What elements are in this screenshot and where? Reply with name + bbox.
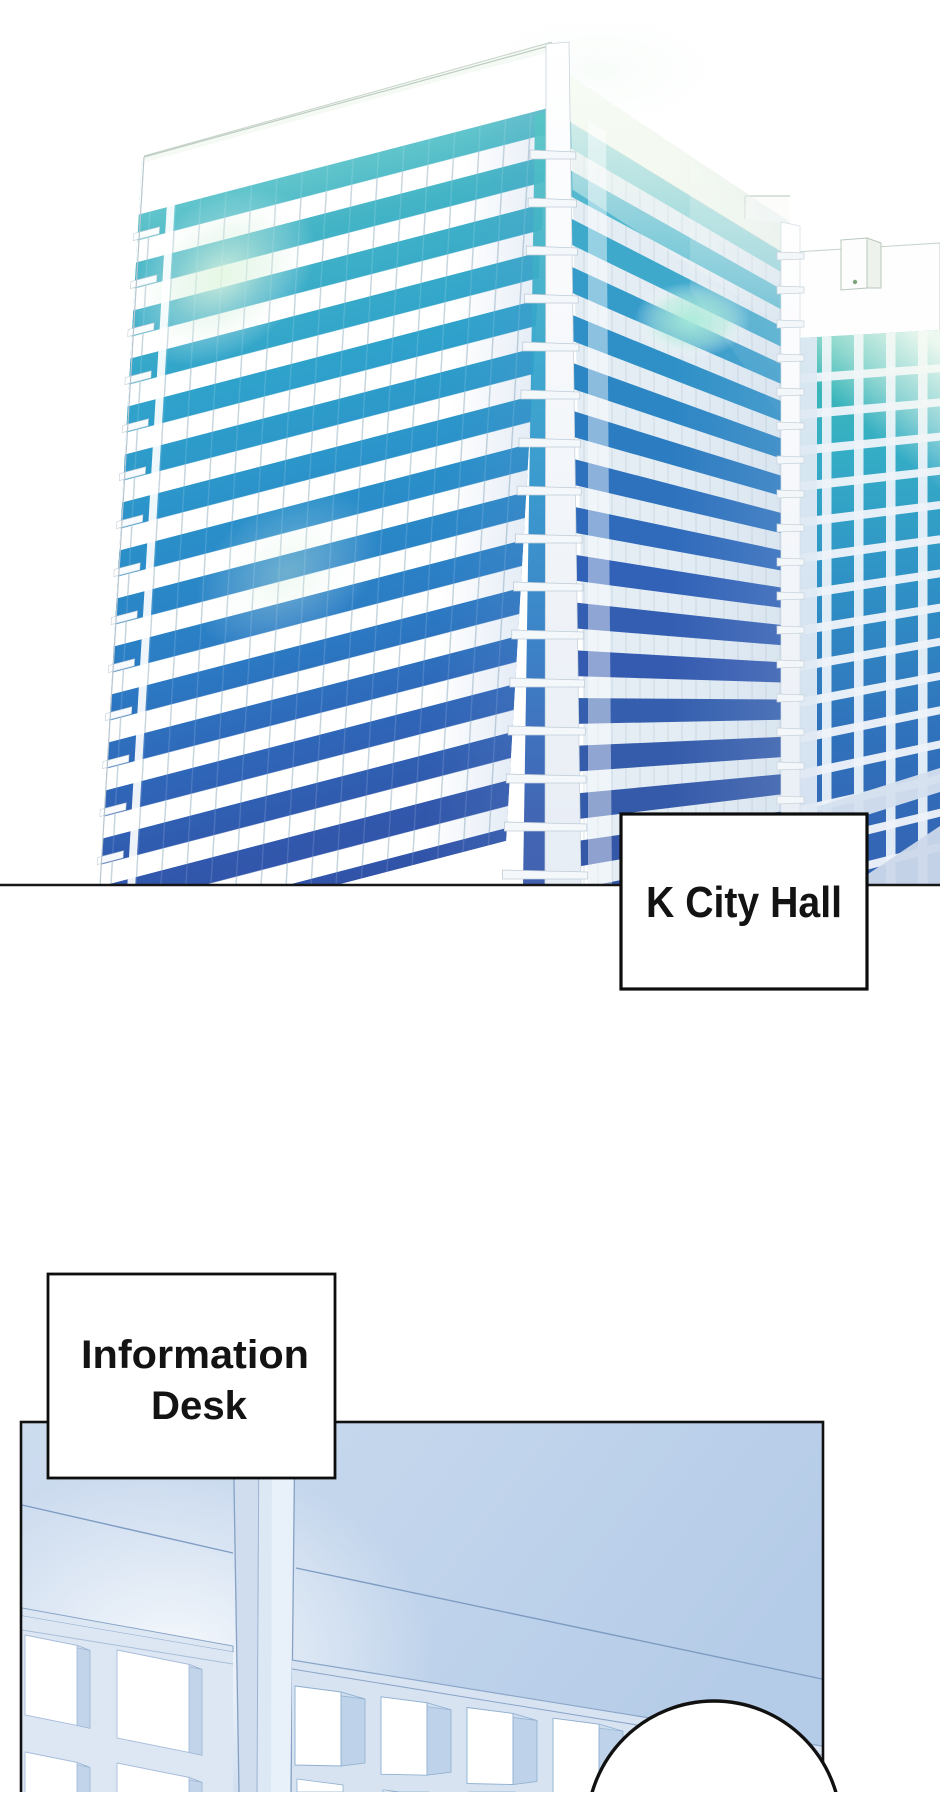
svg-text:Desk: Desk xyxy=(151,1384,248,1428)
svg-text:K City Hall: K City Hall xyxy=(646,878,842,927)
svg-text:Information: Information xyxy=(81,1333,309,1377)
